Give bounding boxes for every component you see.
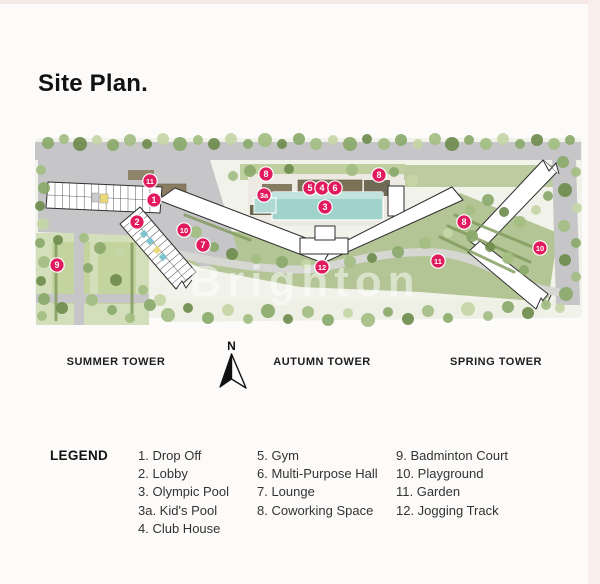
right-accent-strip	[588, 0, 600, 584]
legend-heading: LEGEND	[50, 448, 108, 463]
map-marker-label: 7	[200, 240, 205, 250]
legend-column-2: 5. Gym 6. Multi-Purpose Hall 7. Lounge 8…	[257, 447, 378, 520]
map-marker-label: 3a	[260, 191, 269, 200]
legend-item: 2. Lobby	[138, 465, 229, 483]
legend-item: 3. Olympic Pool	[138, 483, 229, 501]
compass-n-label: N	[227, 339, 236, 353]
page-title: Site Plan.	[38, 70, 148, 98]
compass: N	[220, 339, 246, 388]
compass-north-arrow	[220, 354, 232, 387]
map-marker-label: 10	[180, 226, 188, 235]
map-marker-label: 9	[54, 260, 59, 270]
legend-column-1: 1. Drop Off 2. Lobby 3. Olympic Pool 3a.…	[138, 447, 229, 538]
tower-label-autumn: AUTUMN TOWER	[273, 356, 370, 368]
legend-column-3: 9. Badminton Court 10. Playground 11. Ga…	[396, 447, 508, 520]
map-marker-label: 6	[332, 183, 337, 193]
legend-item: 4. Club House	[138, 520, 229, 538]
tower-label-spring: SPRING TOWER	[450, 356, 542, 368]
map-marker-label: 3	[322, 202, 327, 212]
coworking-building	[388, 186, 404, 216]
top-accent-strip	[0, 0, 600, 4]
map-marker-label: 1	[151, 195, 156, 205]
legend-item: 12. Jogging Track	[396, 502, 508, 520]
lift-core-yellow	[100, 194, 108, 203]
map-marker-label: 12	[318, 263, 326, 272]
map-marker-label: 4	[319, 183, 324, 193]
tower-label-summer: SUMMER TOWER	[67, 356, 166, 368]
lift-core-grey	[92, 193, 99, 202]
legend-item: 8. Coworking Space	[257, 502, 378, 520]
legend-item: 1. Drop Off	[138, 447, 229, 465]
map-marker-label: 5	[307, 183, 312, 193]
map-marker-label: 8	[376, 170, 381, 180]
map-marker-label: 8	[263, 169, 268, 179]
map-marker-label: 2	[134, 217, 139, 227]
legend-item: 9. Badminton Court	[396, 447, 508, 465]
autumn-tower-center-notch	[315, 226, 335, 240]
legend-item: 11. Garden	[396, 483, 508, 501]
legend-item: 10. Playground	[396, 465, 508, 483]
compass-north-arrow-right	[232, 354, 247, 388]
legend-item: 6. Multi-Purpose Hall	[257, 465, 378, 483]
map-marker-label: 10	[536, 244, 544, 253]
map-marker-label: 11	[146, 177, 154, 186]
map-marker-label: 11	[434, 257, 442, 266]
map-marker-label: 8	[461, 217, 466, 227]
legend-item: 5. Gym	[257, 447, 378, 465]
watermark: Brighton	[189, 257, 420, 306]
legend-item: 7. Lounge	[257, 483, 378, 501]
legend-item: 3a. Kid's Pool	[138, 502, 229, 520]
